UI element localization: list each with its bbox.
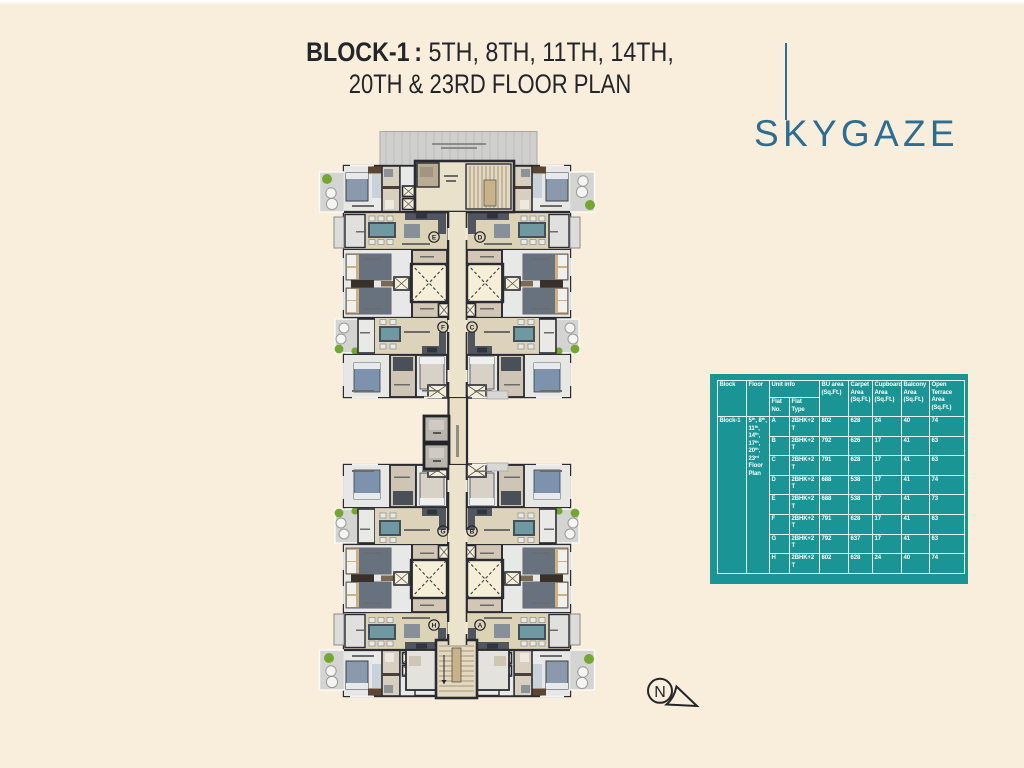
svg-text:C: C	[470, 325, 475, 332]
svg-text:A: A	[478, 623, 483, 630]
svg-text:N: N	[654, 684, 666, 701]
svg-text:F: F	[441, 325, 445, 332]
svg-text:D: D	[478, 235, 483, 242]
svg-text:E: E	[432, 235, 437, 242]
svg-text:B: B	[470, 529, 475, 536]
svg-text:H: H	[432, 623, 437, 630]
svg-text:G: G	[440, 529, 445, 536]
